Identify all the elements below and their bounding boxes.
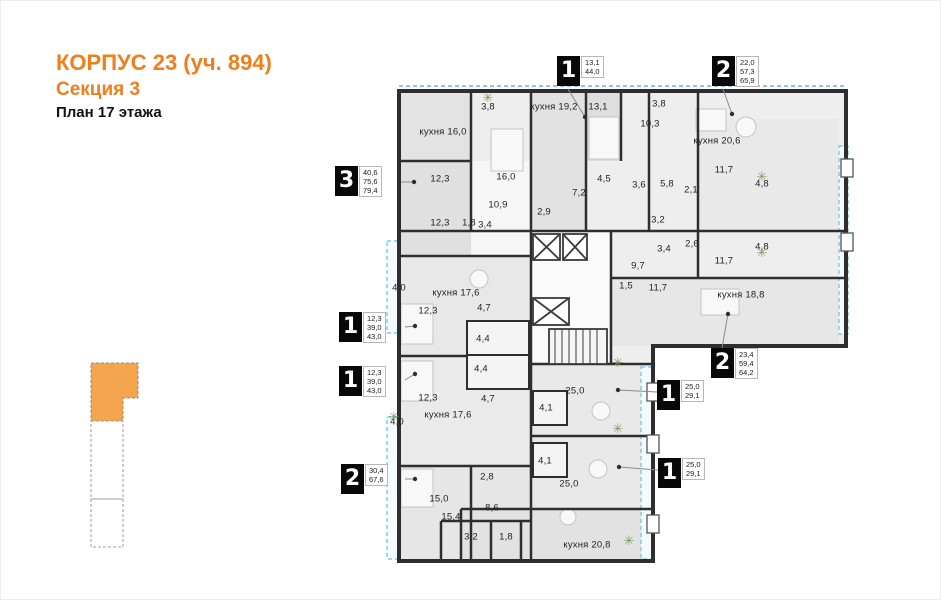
- plant-icon: ✳: [389, 410, 400, 425]
- plant-icon: ✳: [757, 170, 768, 185]
- current-section-shape: [91, 363, 138, 421]
- section-locator-map: [91, 363, 138, 547]
- staircase: [549, 329, 607, 364]
- plant-icon: ✳: [624, 534, 635, 549]
- other-sections-shape: [91, 421, 123, 547]
- plant-icon: ✳: [483, 91, 494, 106]
- floor-plan-page: КОРПУС 23 (уч. 894) Секция 3 План 17 эта…: [0, 0, 941, 600]
- floor-plan-drawing: ✳ ✳ ✳ ✳ ✳ ✳ ✳: [1, 1, 941, 600]
- plant-icon: ✳: [613, 356, 624, 371]
- plant-icon: ✳: [613, 422, 624, 437]
- plant-icon: ✳: [757, 246, 768, 261]
